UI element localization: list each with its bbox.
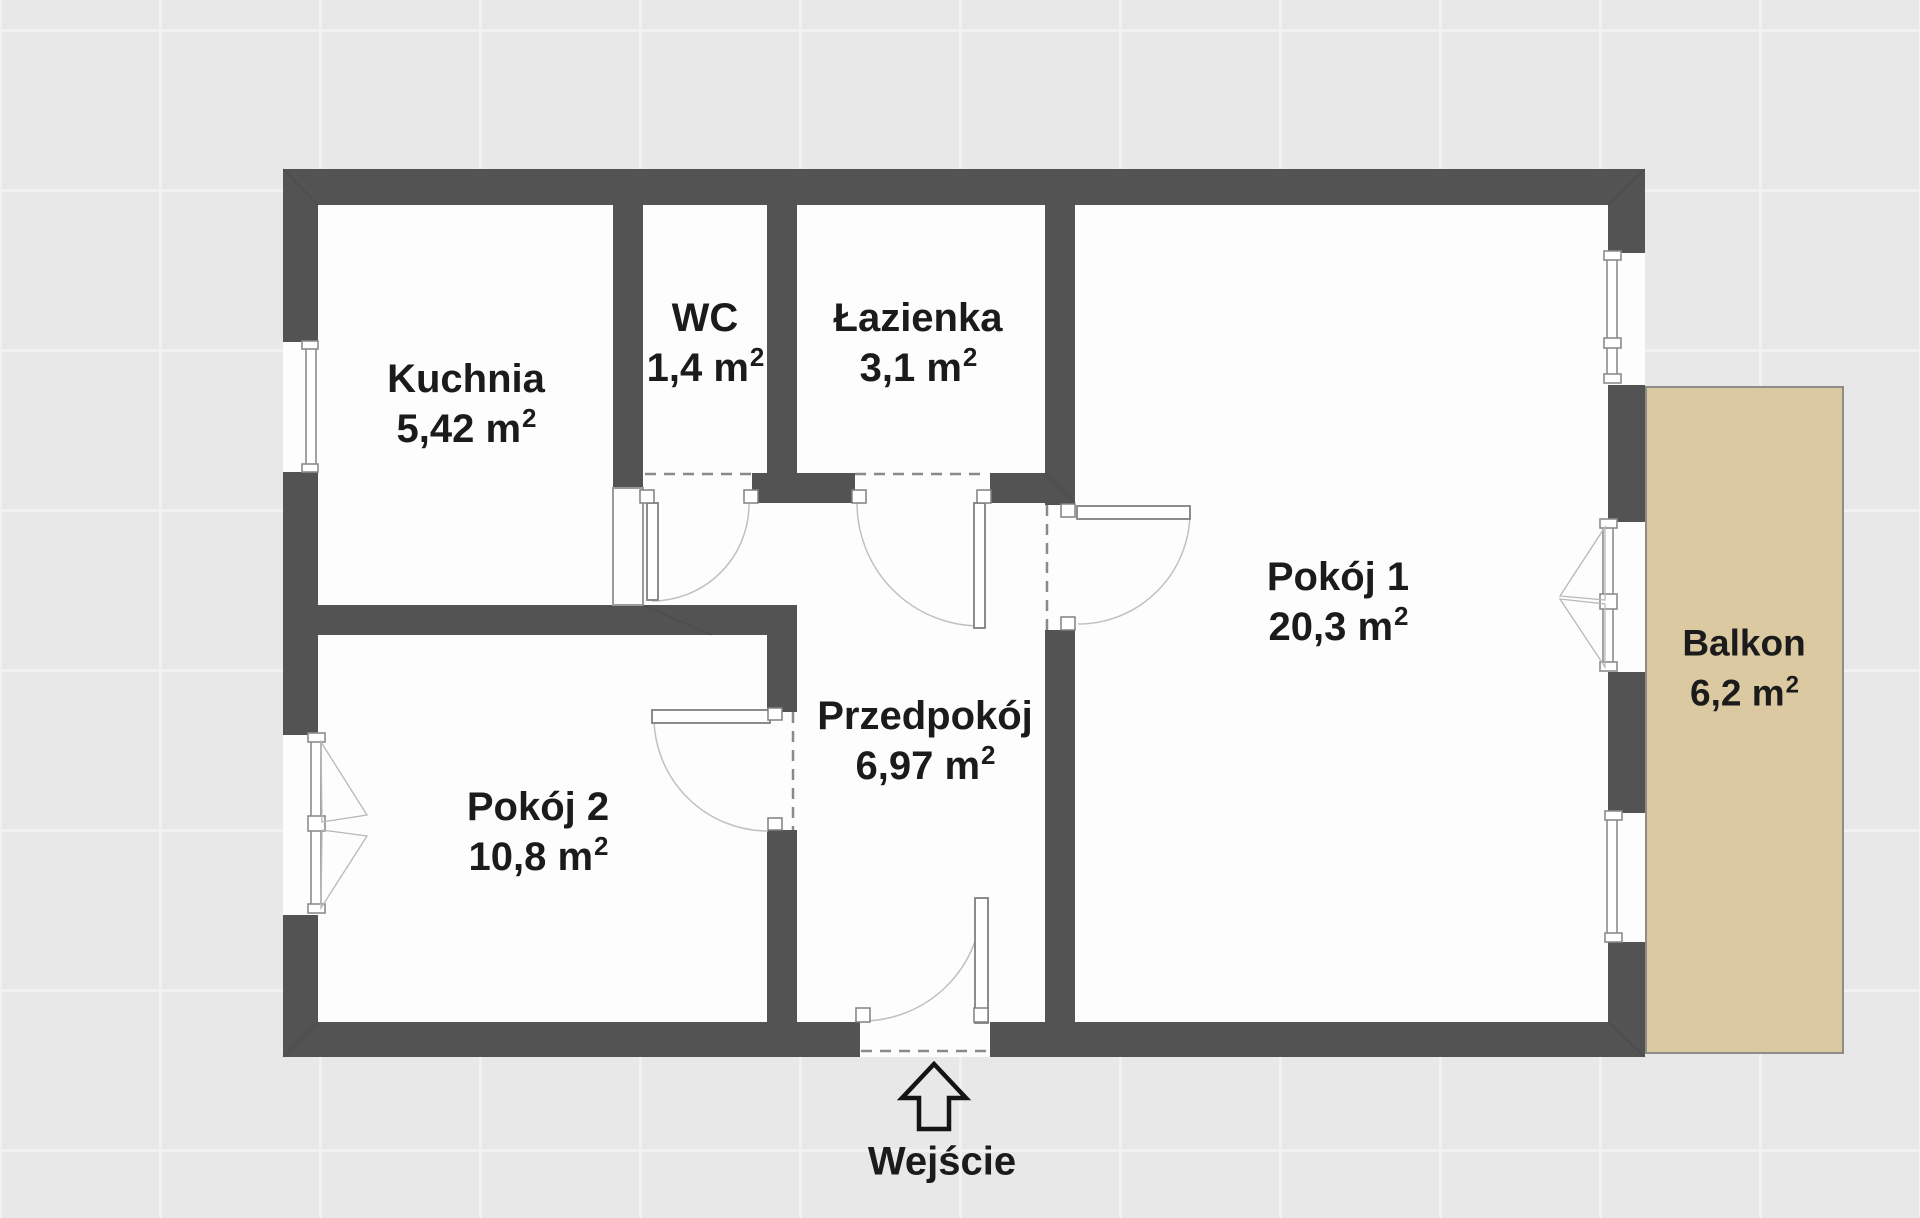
- pane-divider: [1600, 594, 1617, 609]
- pane-cap: [302, 464, 318, 472]
- jamb-mark: [852, 490, 866, 503]
- jamb-mark: [640, 490, 654, 503]
- pane-cap: [1605, 811, 1622, 820]
- room1-window-top-pane: [1607, 256, 1617, 378]
- jamb-mark: [974, 1008, 988, 1022]
- jamb-mark: [1061, 617, 1075, 630]
- kitchen-doorway: [613, 488, 643, 605]
- room2-door-leaf: [652, 710, 770, 723]
- pane-cap: [1600, 519, 1617, 528]
- jamb-mark: [744, 490, 758, 503]
- pane-cap: [308, 733, 325, 742]
- wall-top: [283, 169, 1645, 205]
- jamb-mark: [768, 818, 782, 830]
- pane-cap: [1604, 374, 1621, 383]
- jamb-mark: [856, 1008, 870, 1022]
- room1-door-opening: [1045, 505, 1075, 630]
- wall-room2-right-lower: [767, 830, 797, 1022]
- pane-divider: [1604, 338, 1621, 348]
- floor-plan: Kuchnia 5,42 m2 WC 1,4 m2 Łazienka 3,1 m…: [0, 0, 1920, 1218]
- wall-room2-right-upper: [767, 635, 797, 712]
- entrance-door-leaf: [975, 898, 988, 1023]
- wall-corridor-segment-b: [990, 473, 1045, 503]
- bathroom-door-leaf: [974, 503, 985, 628]
- wc-door-leaf: [647, 503, 658, 600]
- wall-corridor-segment-a: [752, 473, 855, 503]
- kitchen-window-pane: [306, 345, 316, 467]
- jamb-mark: [977, 490, 991, 503]
- jamb-mark: [1061, 504, 1075, 517]
- room1-window-bottom-pane: [1607, 816, 1617, 936]
- entrance-arrow-icon: [902, 1064, 966, 1129]
- wall-room1-left-upper: [1045, 205, 1075, 505]
- wall-kitchen-room2: [318, 605, 797, 635]
- wall-room1-left-lower: [1045, 630, 1075, 1022]
- jamb-mark: [768, 708, 782, 720]
- balcony-area: [1646, 387, 1843, 1053]
- wall-wc-bathroom: [767, 205, 797, 473]
- pane-cap: [302, 341, 318, 349]
- room1-door-leaf: [1077, 506, 1190, 519]
- pane-cap: [1604, 251, 1621, 260]
- wall-kitchen-right: [613, 205, 643, 488]
- pane-cap: [1605, 933, 1622, 942]
- floor-plan-drawing: [0, 0, 1920, 1218]
